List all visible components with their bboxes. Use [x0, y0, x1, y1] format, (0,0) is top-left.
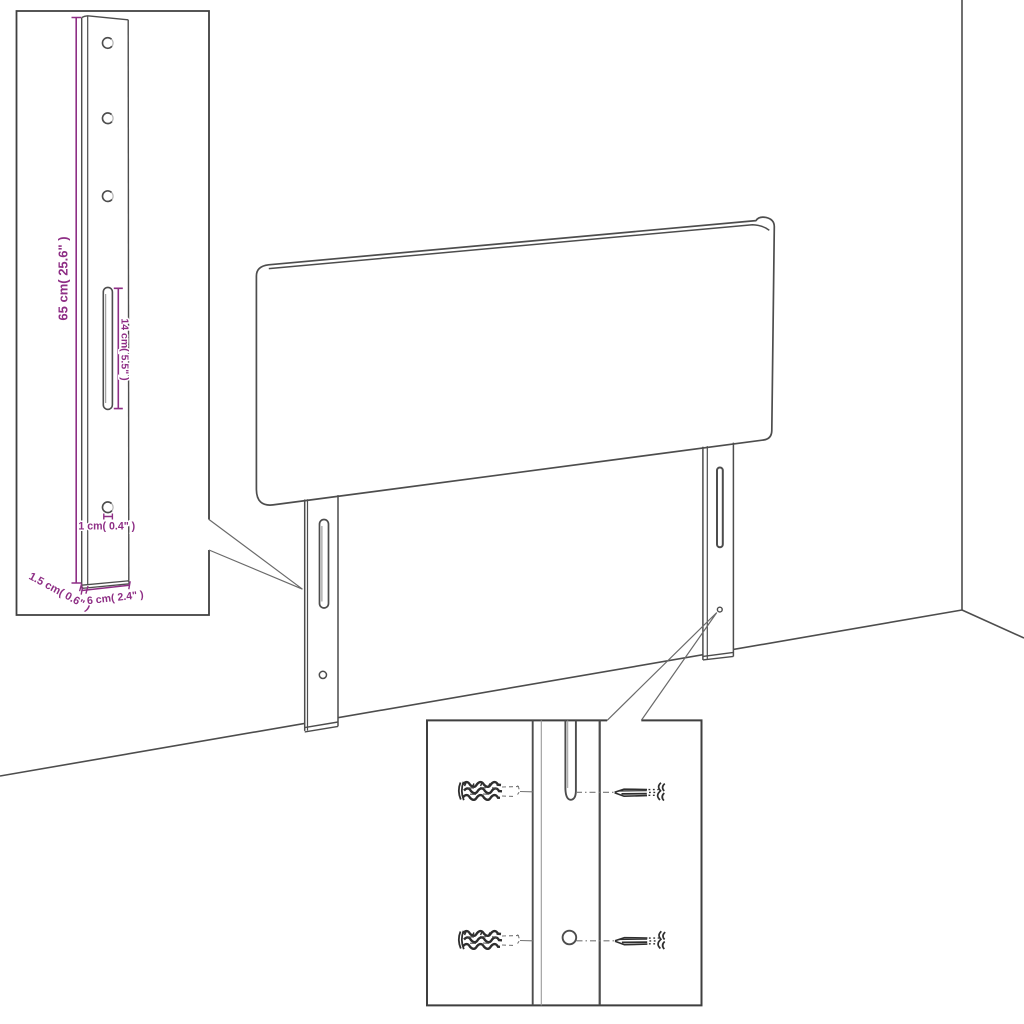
svg-text:14 cm( 5.5" ): 14 cm( 5.5" ) — [119, 318, 131, 380]
svg-text:1 cm( 0.4" ): 1 cm( 0.4" ) — [78, 520, 135, 532]
svg-text:65 cm( 25.6" ): 65 cm( 25.6" ) — [55, 236, 70, 320]
